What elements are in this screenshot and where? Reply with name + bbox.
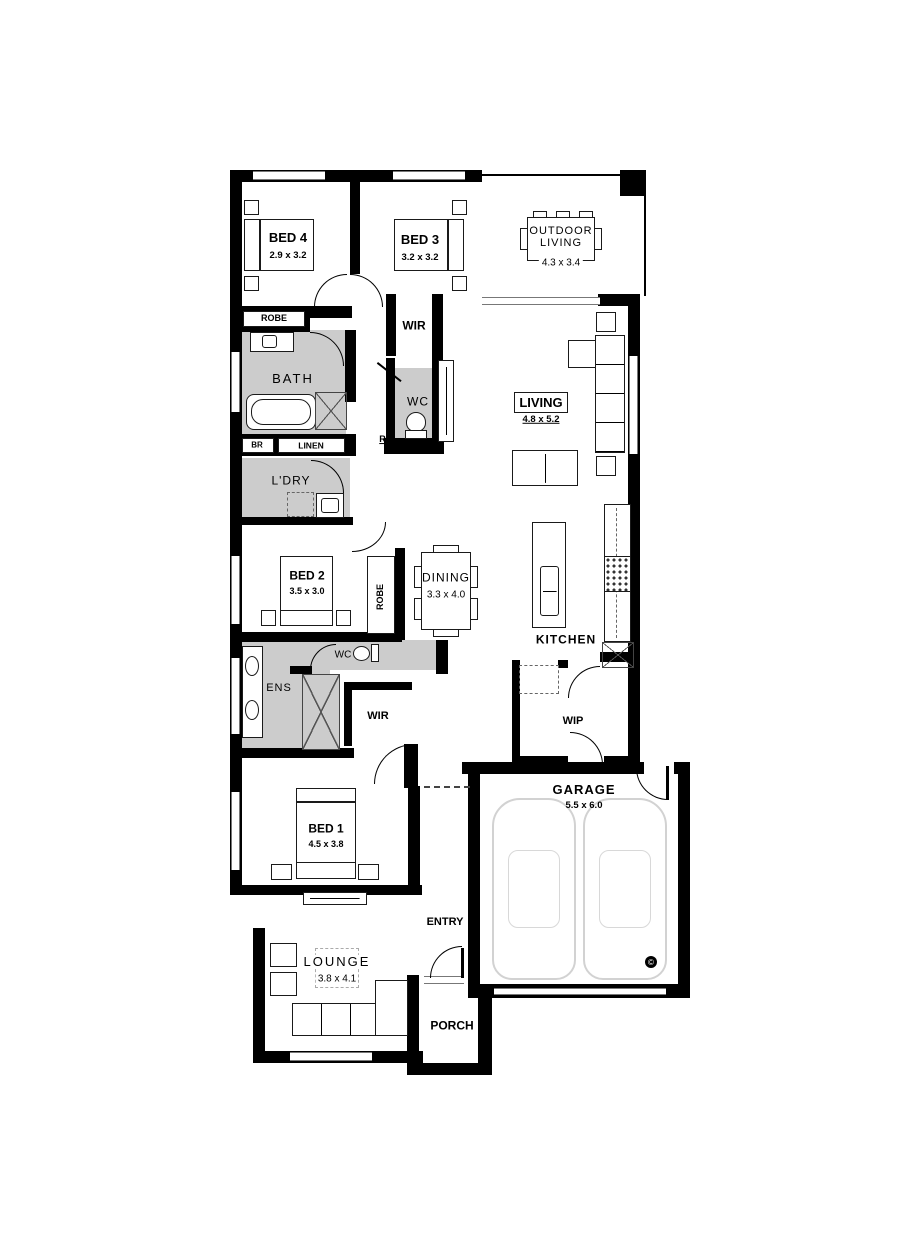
room-label-outdoor-living-1: OUTDOOR	[529, 225, 592, 237]
wall	[478, 985, 492, 1075]
cupboard	[438, 360, 454, 442]
garage-door	[494, 988, 666, 995]
room-dims-outdoor-living: 4.3 x 3.4	[539, 258, 583, 269]
room-label-wir-master: WIR	[367, 710, 388, 722]
door-arc	[374, 744, 414, 784]
room-label-linen: LINEN	[298, 441, 324, 450]
door-leaf	[666, 766, 669, 800]
room-label-br: BR	[251, 442, 263, 451]
wall	[290, 666, 312, 674]
room-dims-bed3: 3.2 x 3.2	[402, 253, 439, 263]
fridge-space	[519, 665, 559, 694]
bed-pillows	[448, 219, 464, 271]
toilet-cistern	[371, 644, 379, 662]
door-arc	[568, 666, 600, 698]
bedside-table	[336, 610, 351, 626]
coffee-table	[512, 450, 578, 486]
car-roof	[508, 850, 560, 928]
window	[231, 556, 240, 624]
bed-pillows	[244, 219, 260, 271]
wall	[468, 762, 480, 990]
room-label-bed2: BED 2	[289, 569, 324, 582]
wall	[230, 170, 242, 888]
room-dims-garage: 5.5 x 6.0	[566, 801, 603, 811]
wall	[395, 548, 405, 640]
ottoman	[596, 312, 616, 332]
room-label-living: LIVING	[519, 396, 562, 410]
room-label-kitchen: KITCHEN	[536, 633, 596, 646]
console-table	[303, 892, 367, 905]
door-arc	[350, 274, 383, 307]
cooktop	[604, 556, 631, 592]
door-arc	[570, 732, 603, 765]
room-label-wir-hall: WIR	[402, 319, 425, 332]
room-label-bed3: BED 3	[401, 233, 439, 247]
wall	[436, 640, 448, 674]
shower	[315, 392, 347, 430]
bedside-table	[452, 200, 467, 215]
room-label-entry: ENTRY	[427, 916, 464, 928]
outdoor-edge	[644, 174, 646, 296]
door-arc	[352, 522, 386, 552]
window	[290, 1052, 372, 1061]
room-dims-bed1: 4.5 x 3.8	[308, 840, 343, 850]
room-dims-dining: 3.3 x 4.0	[427, 590, 465, 601]
room-label-garage: GARAGE	[552, 783, 615, 797]
bed-pillows	[280, 610, 333, 626]
room-dims-living: 4.8 x 5.2	[523, 415, 560, 425]
armchair	[270, 972, 297, 996]
room-label-wip: WIP	[563, 715, 584, 727]
bedside-table	[271, 864, 292, 880]
chair	[594, 228, 602, 250]
wall	[598, 294, 630, 306]
toilet-icon	[353, 646, 370, 661]
wall	[386, 294, 396, 356]
basin	[245, 656, 259, 676]
sink	[540, 566, 559, 616]
wall	[558, 660, 568, 668]
room-label-robe: ROBE	[261, 314, 287, 324]
floor-plan: © BED 4 2.9 x 3.2 BED 3 3.2 x 3.2 OUTDOO…	[0, 0, 901, 1245]
room-label-wc-ens: WC	[335, 650, 352, 661]
wall	[408, 786, 420, 888]
bed-pillows	[296, 862, 356, 879]
door-arc	[430, 946, 462, 978]
laundry-tub-basin	[321, 498, 339, 513]
room-dims-bed2: 3.5 x 3.0	[289, 587, 324, 597]
bedside-table	[452, 276, 467, 291]
wall	[678, 762, 690, 998]
door-arc	[314, 274, 347, 307]
pantry	[602, 642, 634, 668]
wall	[350, 182, 360, 274]
wall	[352, 682, 412, 690]
room-label-bed4: BED 4	[269, 231, 307, 245]
outdoor-edge	[480, 174, 646, 176]
bedside-table	[244, 276, 259, 291]
appliance-space	[287, 492, 314, 517]
window	[393, 171, 465, 180]
basin	[262, 335, 277, 348]
copyright-mark: ©	[645, 956, 657, 968]
room-dims-lounge: 3.8 x 4.1	[316, 974, 358, 985]
window	[231, 352, 240, 412]
bathtub-inner	[251, 399, 311, 425]
bedside-table	[358, 864, 379, 880]
car-roof	[599, 850, 651, 928]
blanket-box	[296, 788, 356, 802]
basin	[245, 700, 259, 720]
sliding-door	[482, 297, 600, 305]
wall	[308, 306, 352, 318]
ottoman	[596, 456, 616, 476]
bed-icon	[280, 556, 333, 612]
window	[253, 171, 325, 180]
window	[231, 792, 240, 870]
return-air-label: R/A	[379, 435, 395, 445]
sofa-chaise	[375, 980, 408, 1036]
bedside-table	[261, 610, 276, 626]
wall	[253, 928, 265, 1063]
bedside-table	[244, 200, 259, 215]
room-label-wc-hall: WC	[407, 395, 429, 408]
room-label-ldry: L'DRY	[271, 474, 310, 487]
room-label-bed1: BED 1	[308, 822, 343, 835]
window	[629, 356, 638, 454]
door-leaf	[461, 948, 464, 978]
threshold-line	[424, 786, 470, 788]
room-label-bath: BATH	[272, 372, 314, 386]
sofa-icon	[595, 335, 625, 453]
room-dims-bed4: 2.9 x 3.2	[270, 251, 307, 261]
room-label-lounge: LOUNGE	[302, 955, 373, 969]
toilet-cistern	[405, 430, 427, 439]
room-label-robe-bed2: ROBE	[376, 584, 386, 610]
sofa-chaise	[568, 340, 596, 368]
wall	[604, 756, 630, 764]
window	[231, 658, 240, 734]
wall	[407, 975, 419, 1075]
room-label-dining: DINING	[422, 571, 470, 584]
room-label-outdoor-living-2: LIVING	[540, 237, 582, 249]
door-arc	[636, 768, 668, 800]
armchair	[270, 943, 297, 967]
wall	[230, 517, 353, 525]
room-label-ens: ENS	[266, 682, 292, 694]
room-label-porch: PORCH	[430, 1019, 473, 1032]
wall	[512, 756, 568, 764]
wall	[344, 682, 352, 746]
shower	[302, 674, 340, 750]
toilet-icon	[406, 412, 426, 432]
